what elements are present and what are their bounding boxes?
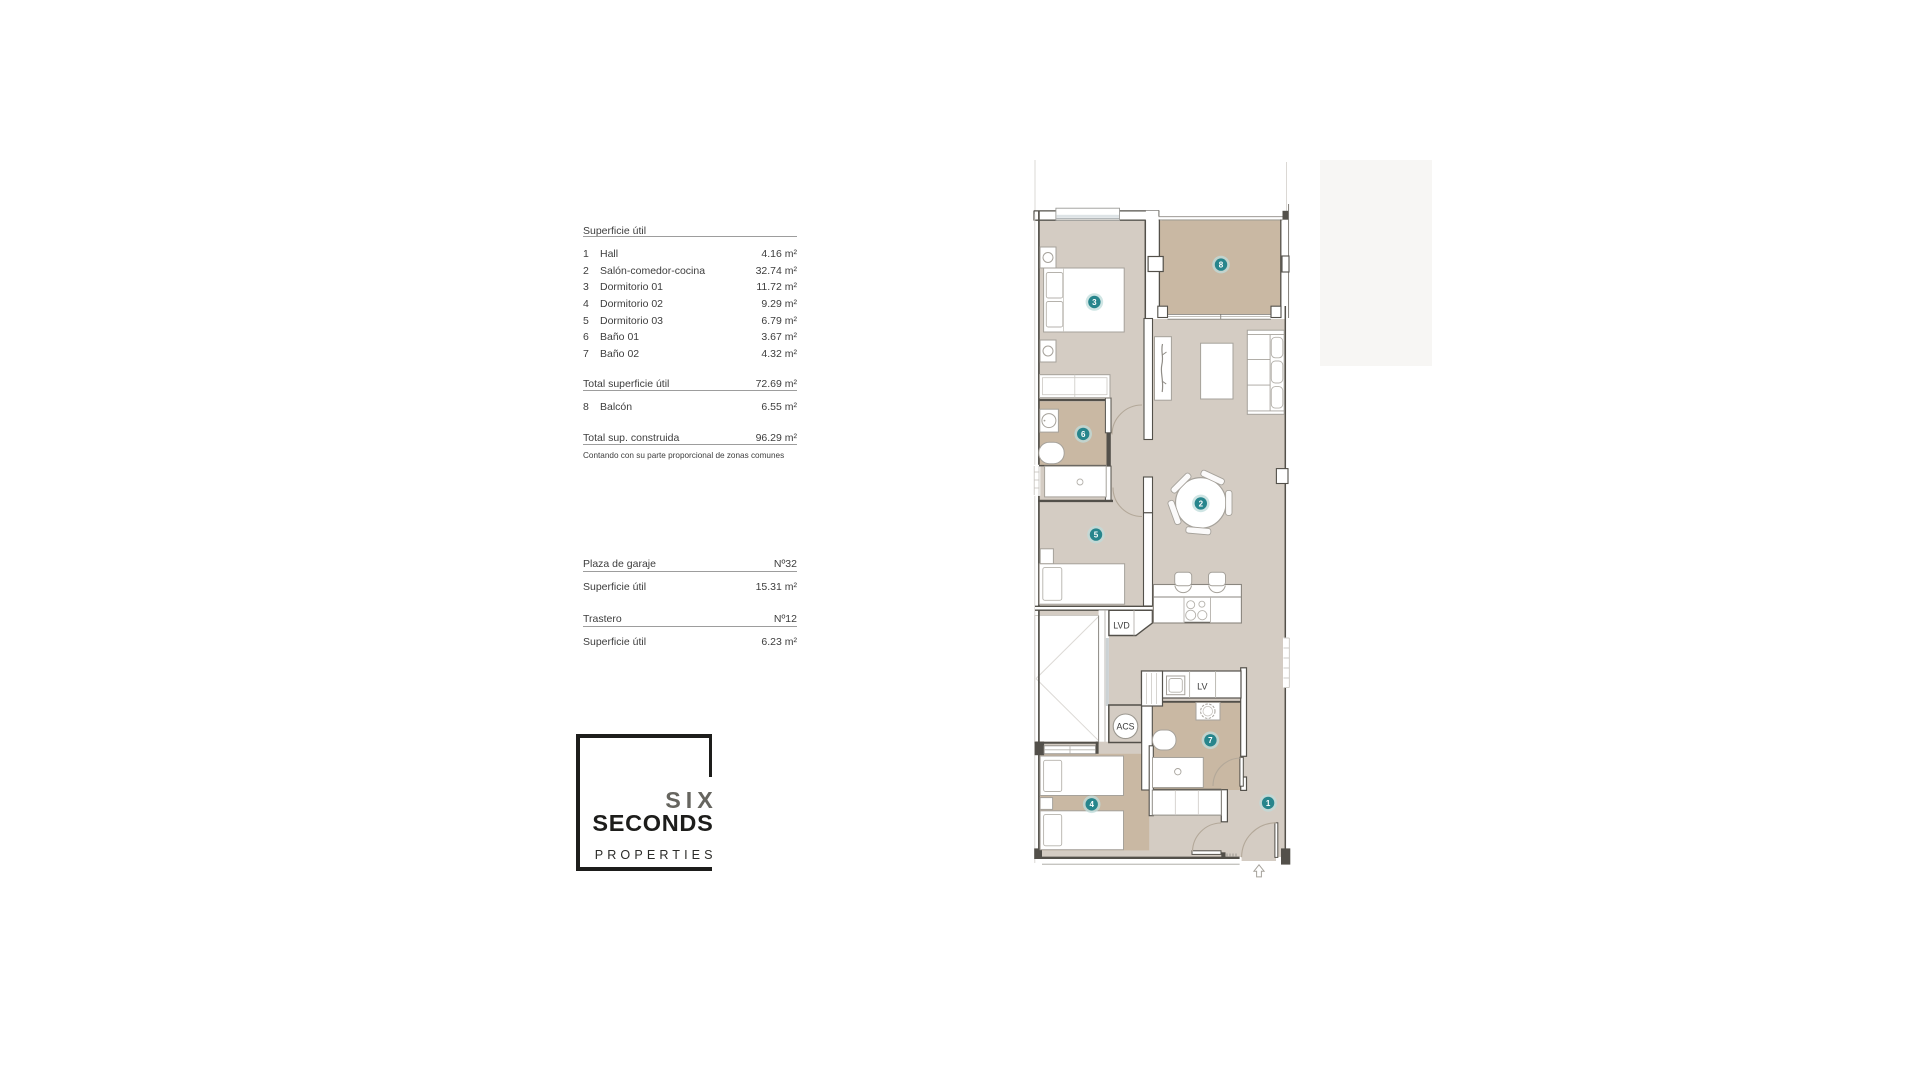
svg-text:ACS: ACS [1116,722,1134,732]
svg-text:LVD: LVD [1113,621,1129,631]
svg-text:LV: LV [1197,681,1207,691]
svg-text:1: 1 [1266,799,1271,808]
svg-text:2: 2 [1199,499,1204,508]
svg-text:8: 8 [1219,261,1224,270]
svg-text:5: 5 [1094,531,1099,540]
svg-text:4: 4 [1089,800,1094,809]
svg-text:7: 7 [1208,736,1213,745]
svg-text:3: 3 [1092,298,1097,307]
svg-text:6: 6 [1081,430,1086,439]
